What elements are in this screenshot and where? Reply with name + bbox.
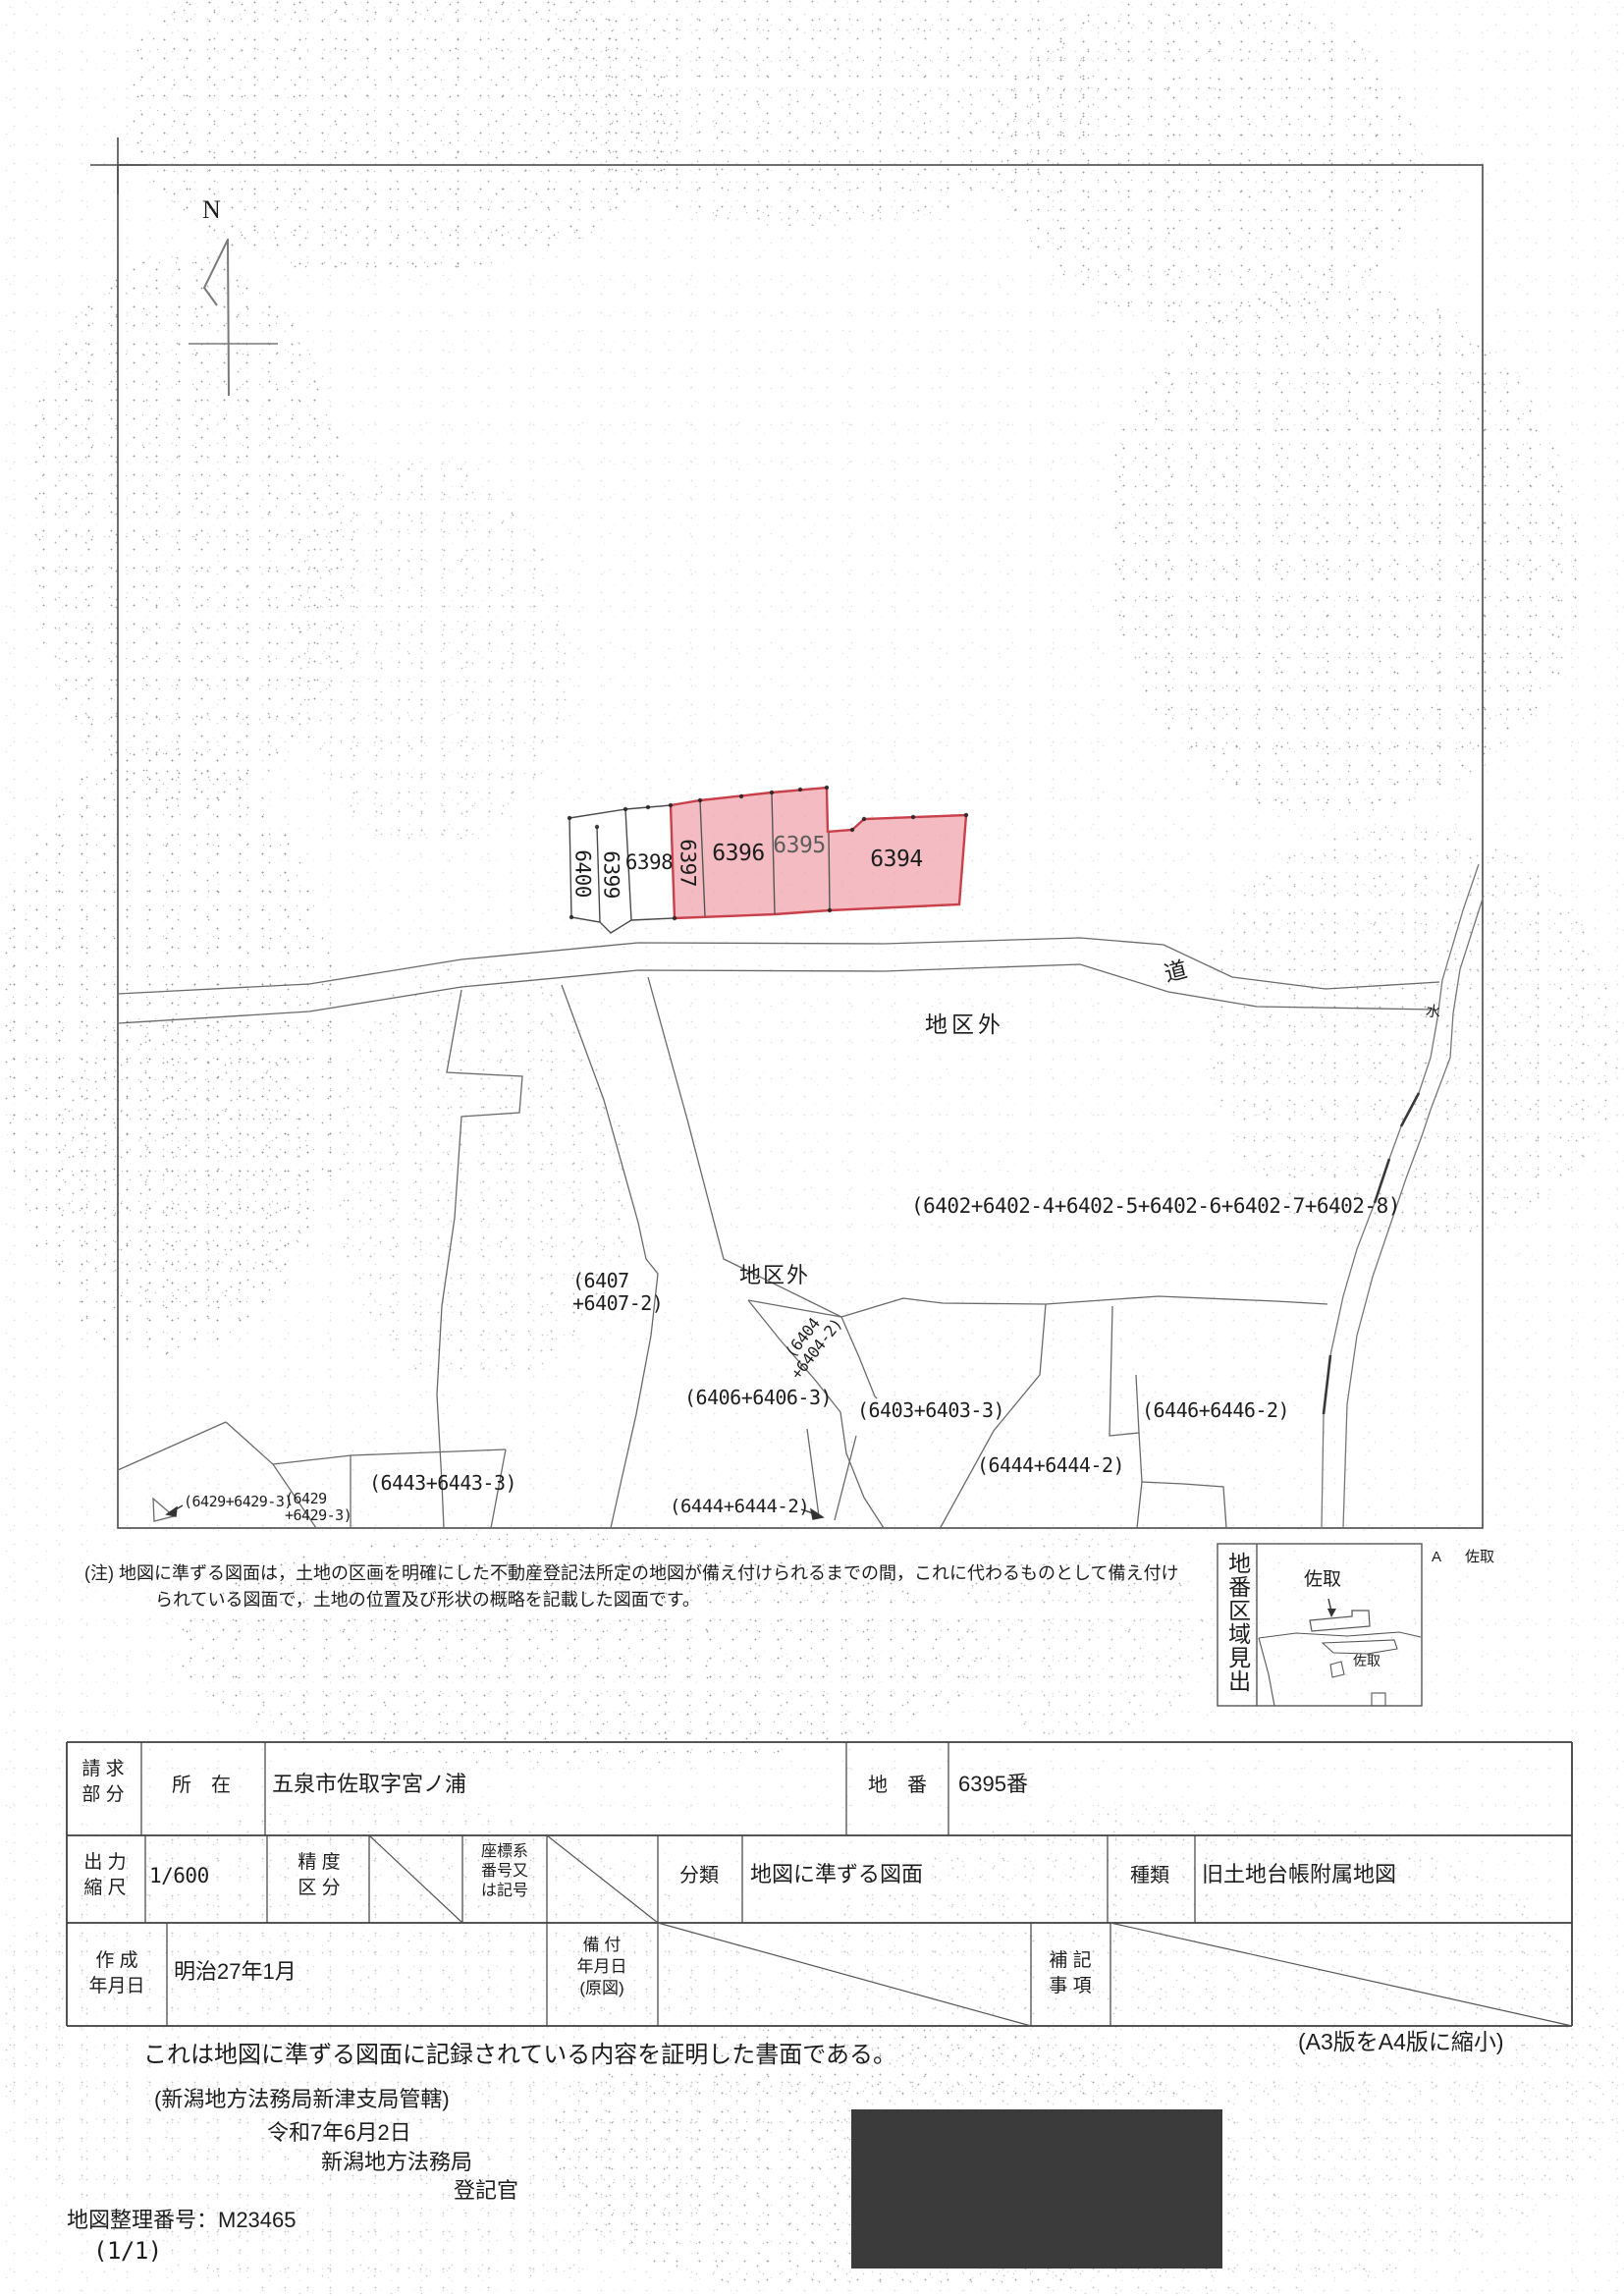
index-box-arrowhead <box>1327 1609 1336 1617</box>
table-created-value: 明治27年1月 <box>174 1959 297 1985</box>
parcel-boundaries <box>118 977 1327 1529</box>
note-line2: られている図面で，土地の位置及び形状の概略を記載した図面です。 <box>155 1590 700 1612</box>
parcel-label-6398: 6398 <box>615 850 683 875</box>
outside-district-label-2: 地区外 <box>739 1263 810 1288</box>
registrar-label: 登記官 <box>454 2178 518 2204</box>
north-label: N <box>202 194 221 225</box>
corner-label-place: 佐取 <box>1465 1549 1494 1566</box>
reduction-note: (A3版をA4版に縮小) <box>1298 2029 1504 2056</box>
table-filed-label: 備 付 年月日 (原図) <box>553 1935 651 1999</box>
table-request-label: 請 求 部 分 <box>71 1757 135 1807</box>
jurisdiction-note: (新潟地方法務局新津支局管轄) <box>154 2087 450 2112</box>
certification-statement: これは地図に準ずる図面に記録されている内容を証明した書面である。 <box>143 2042 896 2070</box>
note-line1: (注) 地図に準ずる図面は，土地の区画を明確にした不動産登記法所定の地図が備え付… <box>84 1563 1178 1585</box>
corner-label-a: A <box>1432 1549 1441 1566</box>
parcel-label-6395: 6395 <box>760 833 839 860</box>
table-location-label: 所 在 <box>145 1774 257 1797</box>
water-label: 水 <box>1425 1003 1441 1022</box>
parcel-label-6403: (6403+6403-3) <box>857 1398 1004 1422</box>
map-number: 地図整理番号：M23465 <box>67 2208 297 2233</box>
bureau-name: 新潟地方法務局 <box>321 2150 472 2175</box>
issue-date: 令和7年6月2日 <box>267 2120 411 2146</box>
parcel-label-6394: 6394 <box>857 847 936 874</box>
parcel-label-6444-bottom: (6444+6444-2) <box>670 1496 809 1518</box>
table-precision-label: 精 度 区 分 <box>277 1850 361 1900</box>
map-graphics <box>0 0 1624 2296</box>
parcel-label-6402-group: (6402+6402-4+6402-5+6402-6+6402-7+6402-8… <box>911 1194 1400 1219</box>
table-created-label: 作 成 年月日 <box>73 1948 161 1998</box>
parcel-label-6397: 6397 <box>675 834 699 893</box>
north-arrow <box>189 239 278 396</box>
parcel-label-6446: (6446+6446-2) <box>1142 1398 1289 1422</box>
parcel-label-6429-b: (6429 +6429-3) <box>285 1491 352 1525</box>
parcel-label-6400: 6400 <box>569 845 594 903</box>
table-class-label: 分類 <box>662 1864 736 1887</box>
outside-district-label-1: 地区外 <box>925 1011 1004 1039</box>
table-remarks-label: 補 記 事 項 <box>1033 1948 1108 1998</box>
scanned-document-page: N 6400 6399 6398 6397 6396 6395 6394 道 地… <box>0 0 1624 2296</box>
index-box-place-upper: 佐取 <box>1304 1569 1341 1592</box>
road-lines <box>118 938 1439 1023</box>
parcel-label-6429-a: (6429+6429-3) <box>184 1493 293 1510</box>
table-parcel-label: 地 番 <box>852 1774 943 1797</box>
index-box-place-lower: 佐取 <box>1353 1653 1380 1669</box>
table-location-value: 五泉市佐取字宮ノ浦 <box>272 1772 466 1797</box>
table-kind-label: 種類 <box>1111 1864 1188 1887</box>
index-box-title: 地番区域見出 <box>1223 1552 1251 1701</box>
table-class-value: 地図に準ずる図面 <box>750 1862 923 1887</box>
table-coord-label: 座標系 番号又 は記号 <box>468 1842 541 1901</box>
table-kind-value: 旧土地台帳附属地図 <box>1202 1862 1396 1887</box>
table-scale-label: 出 力 縮 尺 <box>71 1850 139 1900</box>
parcel-label-6444-mid: (6444+6444-2) <box>977 1453 1124 1477</box>
page-number: (1/1) <box>93 2237 162 2266</box>
table-scale-value: 1/600 <box>149 1864 209 1888</box>
parcel-label-6407: (6407 +6407-2) <box>572 1270 663 1315</box>
parcel-label-6406: (6406+6406-3) <box>684 1386 832 1409</box>
redacted-stamp-area <box>851 2109 1222 2269</box>
parcel-label-6443: (6443+6443-3) <box>369 1471 516 1495</box>
table-parcel-value: 6395番 <box>958 1772 1028 1797</box>
